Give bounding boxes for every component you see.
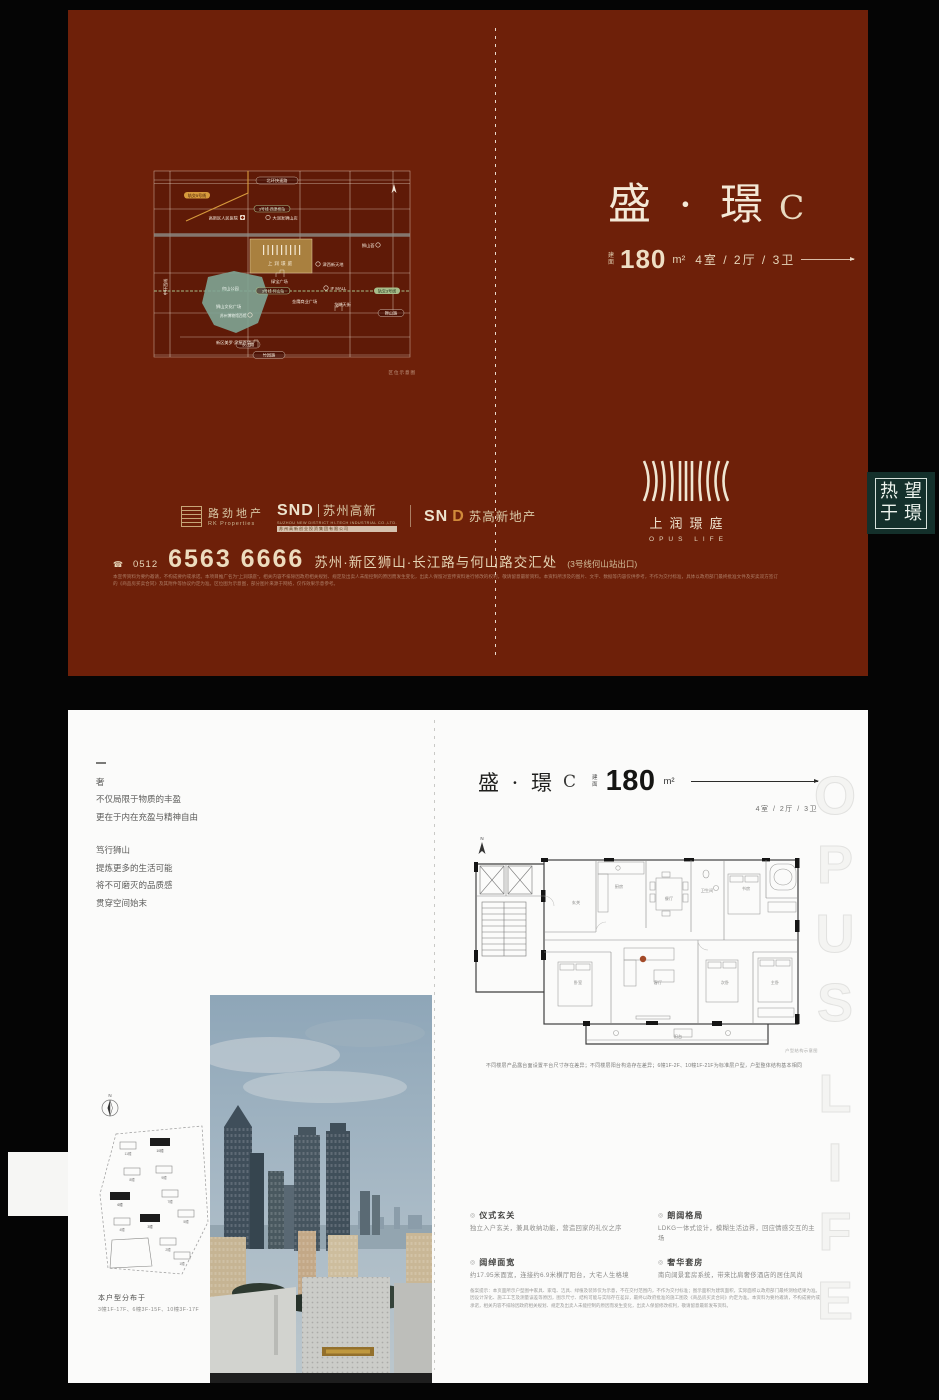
inner-title: 盛 · 璟 (478, 767, 555, 797)
svg-text:N: N (108, 1093, 111, 1098)
svg-text:餐厅: 餐厅 (665, 895, 673, 902)
cover-disclaimer: 本宣传资料为要约邀请，不构成要约或承诺。本项目推广名为“上润璟庭”，相关内容不排… (113, 573, 778, 587)
inner-arrow-line (691, 781, 818, 782)
watermark-word: LIFE (808, 1064, 862, 1340)
svg-text:轨交5号线: 轨交5号线 (188, 192, 206, 198)
inner-title-suffix: C (563, 772, 576, 792)
rk-seal-icon (181, 506, 202, 527)
svg-text:狮山路: 狮山路 (385, 310, 398, 317)
seal-char: 望 (904, 481, 922, 504)
svg-text:轨交3号线: 轨交3号线 (378, 287, 396, 293)
svg-text:2幢: 2幢 (165, 1247, 171, 1252)
snd2-logo-text: SN (424, 508, 448, 526)
svg-text:竹园路: 竹园路 (263, 352, 276, 359)
inner-panel: 奢 不仅局限于物质的丰盈 更在于内在充盈与精神自由 笃行狮山 提炼更多的生活可能… (68, 710, 868, 1383)
feature-item: ◎仪式玄关 独立入户玄关，兼具收纳功能，营造回家的礼仪之序 (470, 1210, 632, 1244)
project-address: 苏州·新区狮山·长江路与何山路交汇处 (314, 551, 557, 571)
area-prefix: 建面 (608, 253, 614, 267)
rk-name-cn: 路劲地产 (208, 505, 264, 521)
svg-text:IF MALL: IF MALL (331, 286, 347, 291)
divider (318, 504, 319, 517)
svg-text:金鹰商业广场: 金鹰商业广场 (292, 298, 317, 305)
svg-text:7幢: 7幢 (167, 1199, 173, 1204)
siteplan-detail: 3幢1F-17F、6幢3F-15F、10幢3F-17F (98, 1306, 199, 1313)
brand-rk: 路劲地产 RK Properties (181, 505, 264, 527)
map-caption: 区位示意图 (336, 370, 416, 376)
snd-logo-text: SND (277, 502, 314, 520)
svg-text:北环快速路: 北环快速路 (267, 177, 289, 184)
cover-title: 盛 · 璟 (608, 170, 770, 232)
city-photo-svg (210, 995, 432, 1383)
seal-char: 璟 (904, 503, 922, 526)
plan-disclaimer: 不同楼层产品露台面设置平台尺寸存在差异；不同楼层阳台构造存在差异；6幢1F-2F… (470, 1062, 818, 1069)
area-value: 180 (620, 244, 666, 275)
seal-inner: 热 望 于 璟 (875, 478, 927, 529)
siteplan-caption: 本户型分布于 (98, 1293, 146, 1303)
feature-list: ◎仪式玄关 独立入户玄关，兼具收纳功能，营造回家的礼仪之序 ◎朗阔格局 LDKG… (470, 1210, 820, 1280)
cover-title-suffix: C (779, 188, 804, 227)
svg-text:书房: 书房 (742, 885, 750, 892)
svg-text:狮山荟: 狮山荟 (362, 242, 375, 249)
bullet-icon: ◎ (470, 1212, 476, 1219)
svg-text:何山公园: 何山公园 (222, 285, 239, 292)
intro-dash (96, 762, 106, 764)
cover-panel: 上润璟庭 北环快速路 竹园路 狮山路 长江路 中环西线 轨交5号线 轨交3 (68, 10, 868, 676)
floor-plan: N (466, 832, 814, 1060)
siteplan-compass: N (102, 1093, 118, 1116)
phone-area-code: 0512 (133, 559, 158, 570)
svg-text:绿宝广场: 绿宝广场 (271, 278, 288, 285)
logo-bars-icon (638, 458, 734, 504)
svg-text:大润发狮山店: 大润发狮山店 (273, 215, 298, 222)
plan-note: 户型结构示意图 (668, 1048, 818, 1054)
svg-text:阳台: 阳台 (674, 1033, 682, 1040)
phone-number: 6563 6666 (168, 545, 304, 574)
svg-text:苏州博物馆西馆: 苏州博物馆西馆 (220, 313, 247, 318)
inner-area-prefix: 建面 (592, 775, 598, 788)
developer-brands: 路劲地产 RK Properties SND 苏州高新 SUZHOU NEW D… (181, 500, 536, 532)
svg-text:高新区人民医院: 高新区人民医院 (209, 215, 239, 222)
svg-text:3号线·何山站: 3号线·何山站 (262, 288, 285, 293)
plan-north-arrow: N (479, 836, 486, 854)
location-map: 上润璟庭 北环快速路 竹园路 狮山路 长江路 中环西线 轨交5号线 轨交3 (150, 165, 416, 367)
divider (410, 505, 411, 527)
bullet-icon: ◎ (658, 1259, 664, 1266)
plan-furniture (544, 862, 796, 1040)
project-logo: 上润璟庭 OPUS LIFE (620, 458, 752, 543)
plan-accent-dot (640, 956, 646, 962)
bullet-icon: ◎ (658, 1212, 664, 1219)
snd2-name-cn: 苏高新地产 (469, 506, 537, 525)
svg-text:3幢: 3幢 (147, 1224, 153, 1229)
siteplan-buildings: 11幢 10幢 8幢 9幢 6幢 7幢 4幢 3幢 5幢 2幢 1幢 (110, 1138, 194, 1268)
svg-text:次卧: 次卧 (721, 979, 729, 986)
svg-text:8幢: 8幢 (129, 1177, 135, 1182)
svg-text:卫生间: 卫生间 (701, 887, 714, 894)
svg-text:客厅: 客厅 (654, 979, 662, 986)
rk-name-en: RK Properties (208, 521, 264, 527)
plan-room-labels: 玄关 餐厅 厨房 客厅 阳台 主卧 次卧 书房 卧室 卫生间 (572, 883, 779, 1040)
bullet-icon: ◎ (470, 1259, 476, 1266)
site-plan: N 11幢 10幢 8幢 9幢 6幢 7幢 4幢 3幢 5幢 2幢 1幢 (86, 1090, 216, 1290)
svg-text:10幢: 10幢 (156, 1148, 164, 1153)
phone-icon: ☎ (113, 560, 123, 569)
opus-life-watermark: OPUS LIFE (804, 766, 866, 1340)
svg-text:1幢: 1幢 (179, 1261, 185, 1266)
svg-text:玄关: 玄关 (572, 899, 580, 906)
svg-text:厨房: 厨房 (615, 883, 623, 890)
seal-char: 热 (880, 481, 898, 504)
logo-name-cn: 上润璟庭 (642, 513, 729, 532)
watermark-word: OPUS (808, 766, 862, 1042)
map-project-label: 上润璟庭 (268, 260, 294, 267)
brand-snd-group: SND 苏州高新 SUZHOU NEW DISTRICT HI-TECH IND… (277, 500, 397, 532)
snd-name-en: SUZHOU NEW DISTRICT HI-TECH INDUSTRIAL C… (277, 521, 397, 525)
seal-char: 于 (880, 503, 898, 526)
area-unit: m² (672, 254, 685, 266)
inner-header: 盛 · 璟 C 建面 180 m² 4室 / 2厅 / 3卫 (478, 765, 818, 814)
svg-text:狮山文化广场: 狮山文化广场 (216, 303, 241, 310)
inner-area-value: 180 (606, 765, 656, 798)
feature-item: ◎阔绰面宽 约17.95米面宽，连接约6.9米横厅阳台，大宅人生格境 (470, 1257, 632, 1281)
contact-line: ☎ 0512 6563 6666 苏州·新区狮山·长江路与何山路交汇处 (3号线… (113, 545, 828, 574)
svg-text:6幢: 6幢 (117, 1202, 123, 1207)
svg-text:9幢: 9幢 (161, 1175, 167, 1180)
location-map-svg: 上润璟庭 北环快速路 竹园路 狮山路 长江路 中环西线 轨交5号线 轨交3 (150, 165, 416, 367)
svg-text:新区美罗·泉屋百货: 新区美罗·泉屋百货 (216, 339, 251, 346)
svg-text:4幢: 4幢 (119, 1227, 125, 1232)
svg-text:5幢: 5幢 (183, 1219, 189, 1224)
svg-text:主卧: 主卧 (771, 979, 779, 986)
edge-white-tab (8, 1152, 68, 1216)
svg-text:津西新天地: 津西新天地 (323, 261, 345, 268)
seal-stamp: 热 望 于 璟 (867, 472, 935, 534)
svg-text:11幢: 11幢 (125, 1151, 133, 1156)
snd2-logo-d: D (452, 508, 465, 526)
arrow-line (801, 259, 854, 260)
snd-subtitle-strip: 苏州高新创业投资集团有限公司 (277, 526, 397, 532)
svg-text:3号线·西津桥站: 3号线·西津桥站 (259, 206, 285, 211)
intro-copy: 奢 不仅局限于物质的丰盈 更在于内在充盈与精神自由 笃行狮山 提炼更多的生活可能… (96, 762, 198, 912)
brand-snd-estate: SND 苏高新地产 (424, 506, 536, 526)
inner-rooms-info: 4室 / 2厅 / 3卫 (478, 804, 818, 814)
inner-fold-line (434, 720, 435, 1370)
city-photo (210, 995, 432, 1383)
feature-item: ◎朗阔格局 LDKG一体式设计，模糊生活边界，回应情感交互的主场 (658, 1210, 820, 1244)
map-project-block: 上润璟庭 (250, 239, 312, 273)
logo-name-en: OPUS LIFE (644, 536, 728, 543)
svg-text:N: N (480, 836, 483, 841)
cover-title-block: 盛 · 璟 C 建面 180 m² 4室 / 2厅 / 3卫 (608, 170, 854, 275)
brochure-page: 上润璟庭 北环快速路 竹园路 狮山路 长江路 中环西线 轨交5号线 轨交3 (0, 0, 939, 1400)
feature-item: ◎奢华套房 南向阔景套房系统，带来比肩奢侈酒店的居住风尚 (658, 1257, 820, 1281)
rooms-info: 4室 / 2厅 / 3卫 (695, 251, 795, 268)
inner-area-unit: m² (663, 776, 674, 787)
legal-text: 备案提示：本页面所示户型图中家具、家电、洁具、绿植及装饰仅为示意，不在交付范围内… (470, 1287, 820, 1310)
address-note: (3号线何山站出口) (567, 558, 637, 570)
svg-text:卧室: 卧室 (574, 979, 582, 986)
snd-name-cn: 苏州高新 (323, 500, 377, 519)
svg-text:中环西线: 中环西线 (162, 278, 169, 296)
